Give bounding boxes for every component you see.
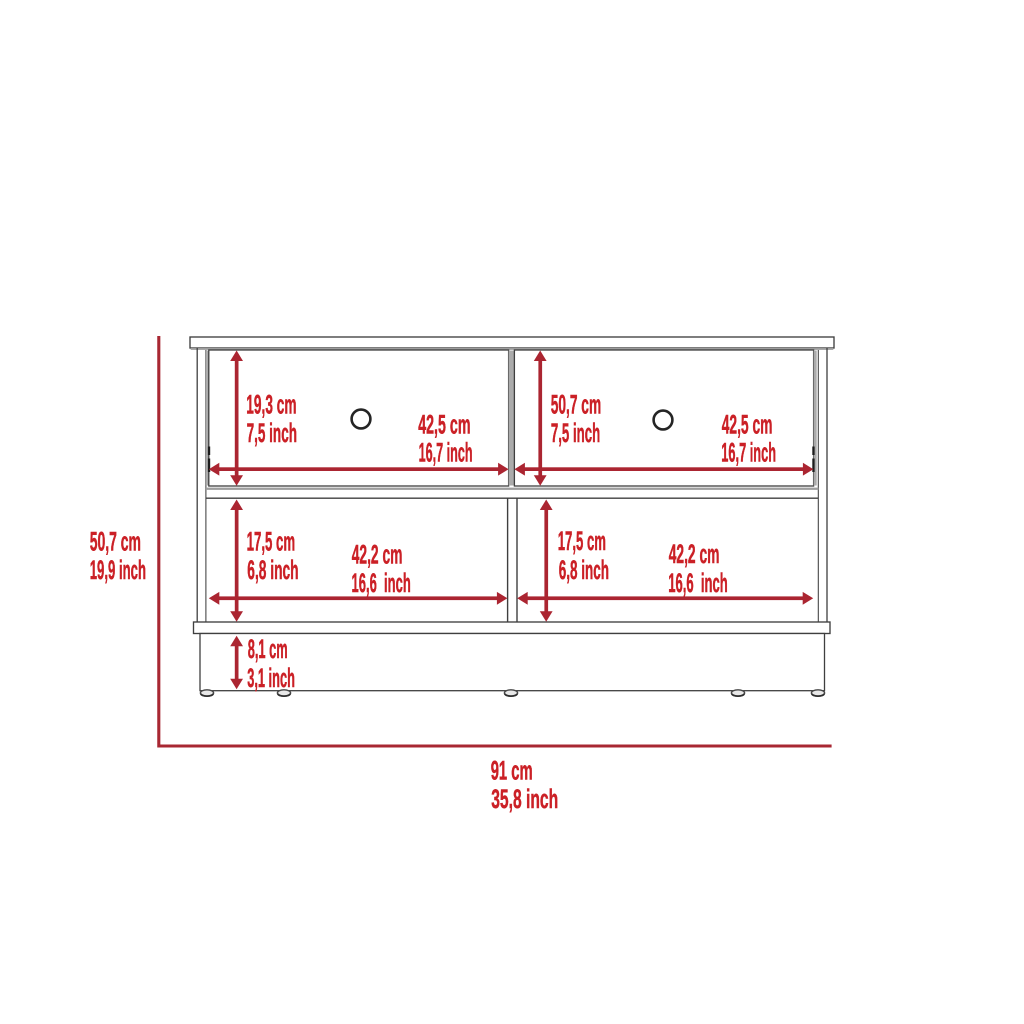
svg-text:42,5 cm: 42,5 cm [722, 409, 773, 439]
svg-text:8,1 cm: 8,1 cm [248, 634, 288, 664]
svg-text:17,5 cm: 17,5 cm [247, 526, 296, 556]
svg-text:91 cm: 91 cm [491, 755, 533, 785]
svg-text:42,5 cm: 42,5 cm [418, 409, 470, 439]
svg-text:7,5 inch: 7,5 inch [551, 418, 600, 448]
svg-text:50,7 cm: 50,7 cm [551, 389, 602, 419]
svg-text:19,9 inch: 19,9 inch [90, 555, 146, 585]
svg-text:6,8 inch: 6,8 inch [247, 555, 298, 585]
svg-text:35,8 inch: 35,8 inch [491, 784, 558, 814]
svg-text:50,7 cm: 50,7 cm [90, 527, 141, 557]
svg-text:7,5 inch: 7,5 inch [247, 418, 297, 448]
svg-text:17,5 cm: 17,5 cm [558, 526, 606, 556]
svg-text:42,2 cm: 42,2 cm [669, 539, 720, 569]
svg-text:19,3 cm: 19,3 cm [246, 389, 296, 419]
svg-text:42,2 cm: 42,2 cm [352, 539, 403, 569]
svg-text:6,8 inch: 6,8 inch [559, 555, 609, 585]
svg-text:16,7 inch: 16,7 inch [419, 437, 473, 467]
svg-text:3,1 inch: 3,1 inch [247, 663, 295, 693]
svg-text:16,7 inch: 16,7 inch [721, 437, 776, 467]
svg-text:16,6 inch: 16,6 inch [352, 568, 411, 598]
svg-text:16,6 inch: 16,6 inch [668, 568, 728, 598]
